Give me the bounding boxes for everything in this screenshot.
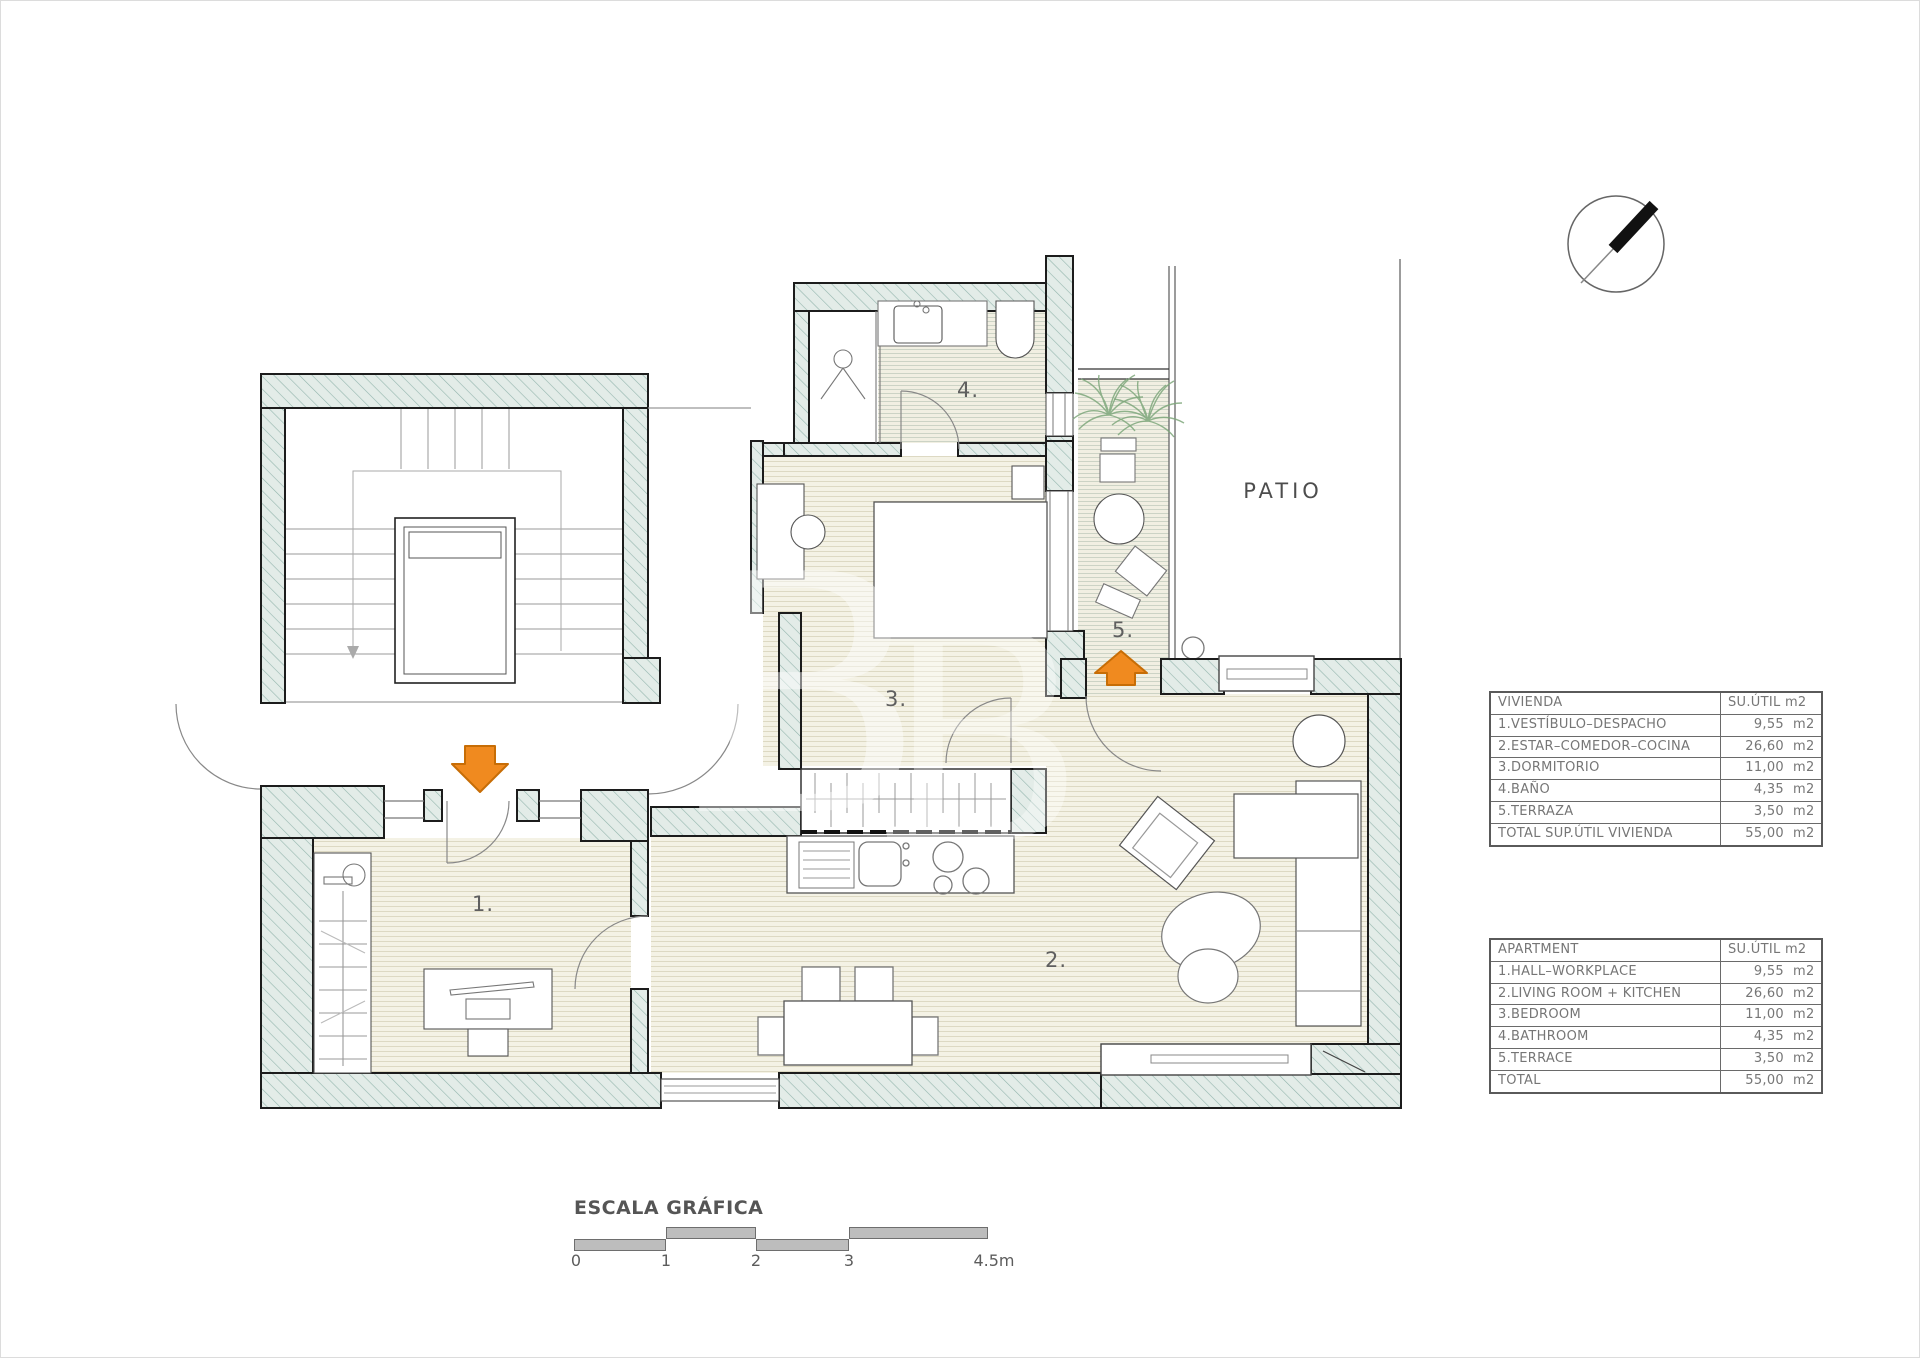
hall-living-divider-upper [631, 841, 648, 916]
bottom-wall-mid [779, 1073, 1101, 1108]
table-header-name: APARTMENT [1491, 940, 1721, 961]
entry-pier-left [424, 790, 442, 821]
table-header-unit: SU.ÚTIL m2 [1721, 940, 1821, 961]
scale-tick: 3 [844, 1251, 854, 1270]
table-row: 3.BEDROOM 11,00m2 [1491, 1004, 1821, 1026]
row-label: 3.BEDROOM [1491, 1005, 1721, 1026]
table-header-unit: SU.ÚTIL m2 [1721, 693, 1821, 714]
area-table-apartment: APARTMENT SU.ÚTIL m2 1.HALL–WORKPLACE 9,… [1489, 938, 1823, 1094]
row-label: TOTAL SUP.ÚTIL VIVIENDA [1491, 824, 1721, 845]
table-total-row: TOTAL 55,00m2 [1491, 1070, 1821, 1092]
row-value: 55,00 [1727, 824, 1793, 845]
scale-segment [756, 1239, 849, 1251]
table-row: 2.LIVING ROOM + KITCHEN 26,60m2 [1491, 983, 1821, 1005]
bath-wall-bottom-right [958, 443, 1046, 456]
row-value: 26,60 [1727, 737, 1793, 758]
stair-wall-left [261, 408, 285, 703]
table-row: 4.BAÑO 4,35m2 [1491, 779, 1821, 801]
row-unit: m2 [1793, 824, 1815, 845]
row-unit: m2 [1793, 737, 1815, 758]
landing-door-arc-left [176, 704, 261, 789]
terrace-pier-right [1161, 659, 1224, 694]
hall-desk-chair [468, 1029, 508, 1056]
room-label-2: 2. [1045, 948, 1067, 972]
bath-terrace-window [1046, 393, 1073, 436]
scale-tick: 0 [571, 1251, 581, 1270]
bedroom-wall-right-upper [1046, 441, 1073, 491]
row-unit: m2 [1793, 984, 1815, 1005]
bottom-wall-right [1101, 1074, 1401, 1108]
dining-chair-left [758, 1017, 784, 1055]
bottom-wall-right-step [1311, 1044, 1401, 1074]
table-row: 3.DORMITORIO 11,00m2 [1491, 757, 1821, 779]
entry-wall-right [581, 790, 648, 841]
row-unit: m2 [1793, 1049, 1815, 1070]
table-row: 5.TERRAZA 3,50m2 [1491, 801, 1821, 823]
hall-living-divider-lower [631, 989, 648, 1073]
terrace-shelf [1101, 438, 1136, 451]
stair-wall-right-jog [623, 658, 660, 703]
area-table-vivienda: VIVIENDA SU.ÚTIL m2 1.VESTÍBULO–DESPACHO… [1489, 691, 1823, 847]
scale-bar-title: ESCALA GRÁFICA [574, 1197, 1014, 1219]
row-unit: m2 [1793, 802, 1815, 823]
table-row: 4.BATHROOM 4,35m2 [1491, 1026, 1821, 1048]
row-label: 1.VESTÍBULO–DESPACHO [1491, 715, 1721, 736]
scale-bar-ticks: 0 1 2 3 4.5m [574, 1251, 988, 1271]
living-patio-window [1219, 656, 1314, 691]
room-label-4: 4. [957, 378, 979, 402]
bath-wall-right-upper [1046, 256, 1073, 393]
bedroom-nightstand [1012, 466, 1044, 499]
terrace-table-round [1094, 494, 1144, 544]
row-value: 26,60 [1727, 984, 1793, 1005]
row-label: 5.TERRAZA [1491, 802, 1721, 823]
row-label: 2.ESTAR–COMEDOR–COCINA [1491, 737, 1721, 758]
row-value: 11,00 [1727, 1005, 1793, 1026]
dining-chair-top-1 [802, 967, 840, 1001]
row-value: 55,00 [1727, 1071, 1793, 1092]
bottom-window-kitchen [661, 1079, 779, 1101]
bath-tub [996, 301, 1034, 358]
entrance-arrow-down-icon [452, 746, 508, 792]
bath-wall-left [794, 311, 809, 446]
row-value: 9,55 [1727, 962, 1793, 983]
hall-closet [314, 853, 371, 1073]
scale-tick: 4.5m [973, 1251, 1014, 1270]
row-value: 4,35 [1727, 780, 1793, 801]
table-header-row: APARTMENT SU.ÚTIL m2 [1491, 940, 1821, 961]
elevator [395, 518, 515, 683]
side-table-round [1293, 715, 1345, 767]
row-label: 3.DORMITORIO [1491, 758, 1721, 779]
row-label: 4.BATHROOM [1491, 1027, 1721, 1048]
stair-wall-top [261, 374, 648, 408]
sofa-chaise [1234, 794, 1358, 858]
pouf-small [1178, 949, 1238, 1003]
bath-wall-bottom-left [784, 443, 901, 456]
watermark-glyph-2: B [871, 573, 1084, 910]
entry-pier-right [517, 790, 539, 821]
table-header-name: VIVIENDA [1491, 693, 1721, 714]
stair-direction-arrow-icon [347, 646, 359, 659]
table-row: 1.VESTÍBULO–DESPACHO 9,55m2 [1491, 714, 1821, 736]
row-unit: m2 [1793, 1005, 1815, 1026]
bottom-wall-left [261, 1073, 661, 1108]
row-value: 3,50 [1727, 802, 1793, 823]
table-row: 1.HALL–WORKPLACE 9,55m2 [1491, 961, 1821, 983]
scale-segment [666, 1227, 756, 1239]
floor-plan-drawing: B B 1. 2. 3. 4. 5. PATIO [1, 1, 1920, 1358]
row-label: TOTAL [1491, 1071, 1721, 1092]
patio-drain [1182, 637, 1204, 659]
living-wall-right [1368, 694, 1401, 1074]
row-value: 11,00 [1727, 758, 1793, 779]
table-row: 5.TERRACE 3,50m2 [1491, 1048, 1821, 1070]
scale-segment [574, 1239, 666, 1251]
north-arrow-compass [1568, 196, 1664, 292]
scale-bar-segments [574, 1227, 988, 1251]
bedroom-wall-top-left [763, 443, 784, 456]
dining-chair-right [912, 1017, 938, 1055]
row-unit: m2 [1793, 1071, 1815, 1092]
table-total-row: TOTAL SUP.ÚTIL VIVIENDA 55,00m2 [1491, 823, 1821, 845]
terrace-table-small [1100, 454, 1135, 482]
dining-chair-top-2 [855, 967, 893, 1001]
scale-tick: 1 [661, 1251, 671, 1270]
scale-bar: ESCALA GRÁFICA 0 1 2 3 4.5m [574, 1197, 1014, 1271]
bath-sink [894, 306, 942, 343]
row-label: 1.HALL–WORKPLACE [1491, 962, 1721, 983]
row-value: 4,35 [1727, 1027, 1793, 1048]
living-wall-top-right [1311, 659, 1401, 694]
row-unit: m2 [1793, 780, 1815, 801]
room-label-3: 3. [885, 687, 907, 711]
patio-label: PATIO [1243, 479, 1323, 503]
room-label-1: 1. [472, 892, 494, 916]
floorplan-page: B B 1. 2. 3. 4. 5. PATIO VIVIENDA SU.ÚTI… [0, 0, 1920, 1358]
scale-segment [849, 1227, 988, 1239]
entry-wall-left [261, 786, 384, 838]
row-label: 5.TERRACE [1491, 1049, 1721, 1070]
row-unit: m2 [1793, 1027, 1815, 1048]
hall-wall-left [261, 838, 313, 1073]
row-unit: m2 [1793, 962, 1815, 983]
table-header-row: VIVIENDA SU.ÚTIL m2 [1491, 693, 1821, 714]
table-row: 2.ESTAR–COMEDOR–COCINA 26,60m2 [1491, 736, 1821, 758]
row-unit: m2 [1793, 758, 1815, 779]
dining-table [784, 1001, 912, 1065]
row-label: 4.BAÑO [1491, 780, 1721, 801]
row-label: 2.LIVING ROOM + KITCHEN [1491, 984, 1721, 1005]
room-label-5: 5. [1112, 618, 1134, 642]
scale-tick: 2 [751, 1251, 761, 1270]
shower-head-icon [821, 350, 865, 399]
row-value: 3,50 [1727, 1049, 1793, 1070]
stair-wall-right [623, 408, 648, 658]
row-value: 9,55 [1727, 715, 1793, 736]
row-unit: m2 [1793, 715, 1815, 736]
